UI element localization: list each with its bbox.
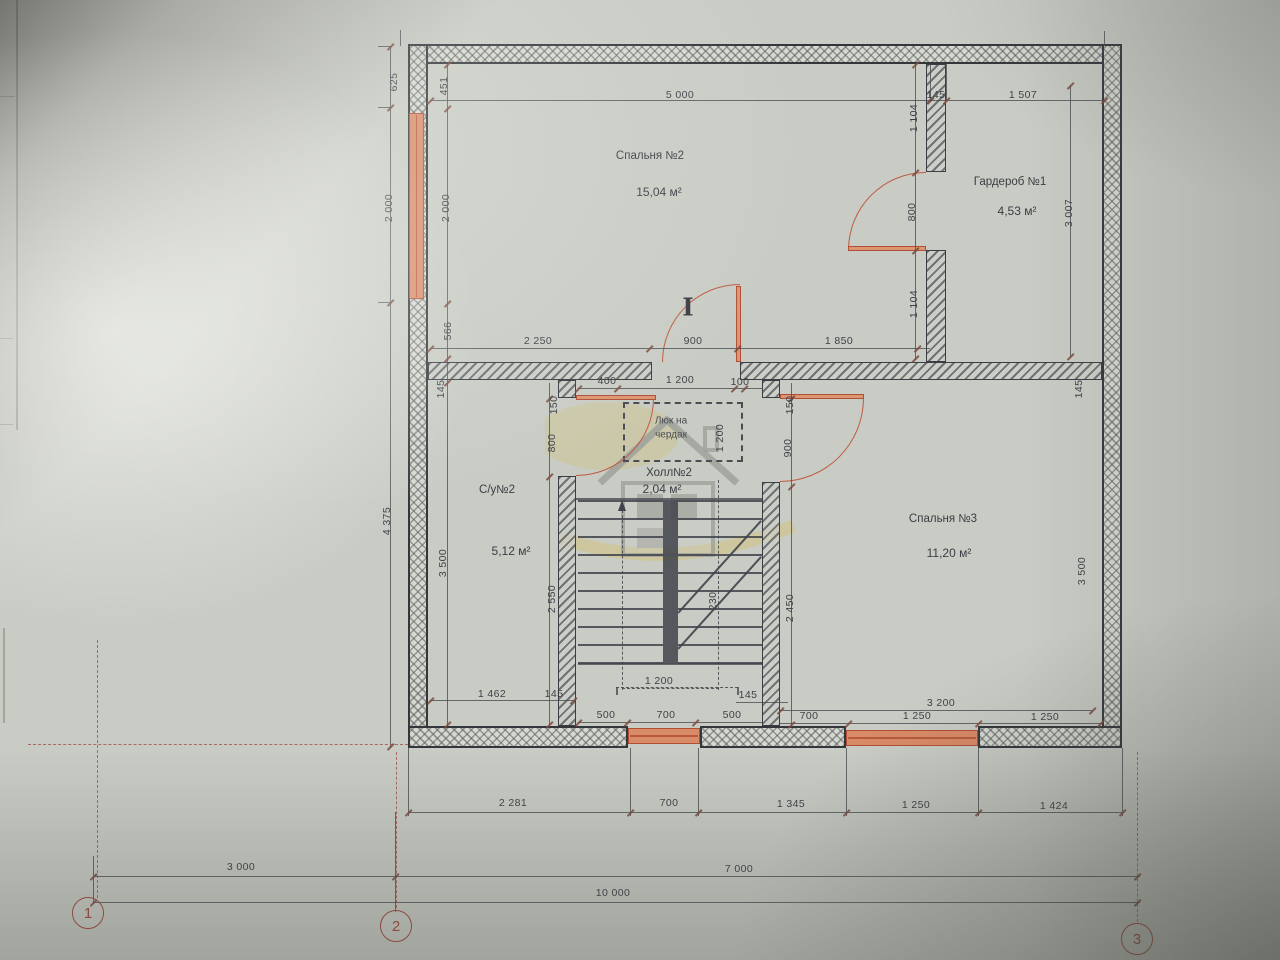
annotation-layer: 5 0001451 5072 2509001 8504001 2001001 4…	[0, 0, 1280, 960]
dimension-label: 7 000	[725, 863, 753, 875]
dimension-label: 145	[545, 688, 564, 700]
dimension-label: 1 507	[1009, 89, 1037, 101]
dimension-label: 3 000	[227, 861, 255, 873]
dimension-label: 700	[800, 710, 819, 722]
room-name-label: Спальня №2	[616, 150, 684, 162]
dimension-label: 3 500	[437, 549, 449, 577]
dimension-label: 1 200	[714, 424, 726, 452]
room-area-label: 11,20 м²	[927, 546, 972, 560]
dimension-label: 150	[548, 396, 560, 415]
dimension-label: 2 450	[784, 594, 796, 622]
room-name-label: С/у№2	[479, 484, 515, 496]
dimension-label: 2 550	[546, 585, 558, 613]
dimension-label: 150	[784, 396, 796, 415]
dimension-label: 3 200	[927, 697, 955, 709]
dimension-label: 145	[739, 689, 758, 701]
door-closer-symbol: I	[682, 293, 693, 322]
dimension-label: 1 200	[645, 675, 673, 687]
dimension-label: 100	[731, 376, 750, 388]
dimension-label: 900	[684, 335, 703, 347]
dimension-label: 1 462	[478, 688, 506, 700]
dimension-label: 4 375	[381, 507, 393, 535]
dimension-label: 1 104	[908, 290, 920, 318]
dimension-label: 800	[906, 203, 918, 222]
attic-hatch-label: чердак	[655, 430, 687, 441]
dimension-label: 800	[546, 434, 558, 453]
dimension-label: 145	[435, 380, 447, 399]
room-area-label: 5,12 м²	[492, 544, 531, 558]
dimension-label: 2 250	[524, 335, 552, 347]
room-name-label: Гардероб №1	[974, 176, 1047, 188]
dimension-label: 1 104	[908, 104, 920, 132]
room-area-label: 15,04 м²	[636, 185, 682, 199]
dimension-label: 145	[1073, 380, 1085, 399]
dimension-label: 5 000	[666, 89, 694, 101]
dimension-label: 700	[660, 797, 679, 809]
dimension-label: 500	[597, 709, 616, 721]
dimension-label: 2 000	[440, 194, 452, 222]
dimension-label: 1 850	[825, 335, 853, 347]
axis-marker: 3	[1121, 923, 1153, 955]
dimension-label: 1 200	[666, 374, 694, 386]
attic-hatch-label: Люк на	[655, 416, 687, 427]
dimension-label: 10 000	[596, 887, 631, 899]
room-name-label: Холл№2	[646, 467, 692, 479]
dimension-label: 230	[707, 592, 719, 611]
dimension-label: 3 007	[1063, 199, 1075, 227]
dimension-label: 700	[657, 709, 676, 721]
room-area-label: 2,04 м²	[643, 482, 682, 496]
dimension-label: 1 345	[777, 798, 805, 810]
dimension-label: 2 000	[383, 194, 395, 222]
dimension-label: 3 500	[1076, 557, 1088, 585]
floor-plan-photo: 5 0001451 5072 2509001 8504001 2001001 4…	[0, 0, 1280, 960]
dimension-label: 625	[388, 73, 400, 92]
room-name-label: Спальня №3	[909, 513, 977, 525]
dimension-label: 500	[723, 709, 742, 721]
dimension-label: 1 250	[903, 710, 931, 722]
dimension-label: 1 250	[1031, 711, 1059, 723]
axis-marker: 1	[72, 897, 104, 929]
dimension-label: 1 424	[1040, 800, 1068, 812]
dimension-label: 900	[782, 439, 794, 458]
dimension-label: 1 250	[902, 799, 930, 811]
dimension-label: 2 281	[499, 797, 527, 809]
dimension-label: 451	[438, 77, 450, 96]
dimension-label: 400	[598, 375, 617, 387]
dimension-label: 566	[442, 322, 454, 341]
dimension-label: 145	[927, 89, 946, 101]
axis-marker: 2	[380, 910, 412, 942]
room-area-label: 4,53 м²	[998, 204, 1037, 218]
